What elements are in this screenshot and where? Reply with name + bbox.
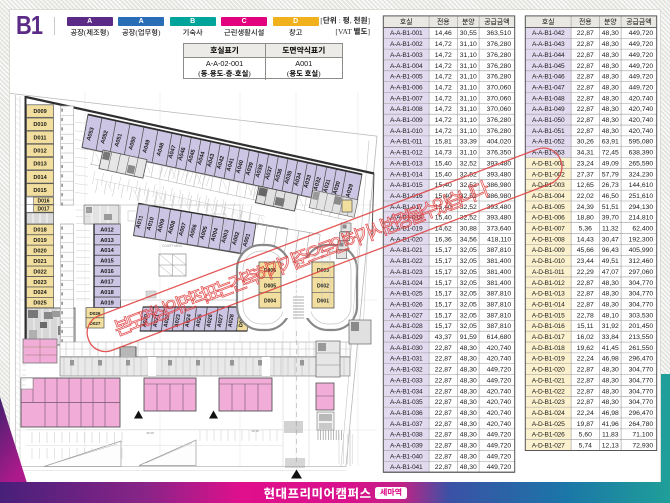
svg-text:12,65: 12,65 <box>577 182 594 189</box>
svg-text:420,740: 420,740 <box>487 421 512 428</box>
svg-text:304,770: 304,770 <box>629 399 654 406</box>
svg-text:34,56: 34,56 <box>460 236 477 243</box>
svg-text:48,30: 48,30 <box>602 280 619 287</box>
svg-text:22,87: 22,87 <box>577 367 594 374</box>
svg-text:22,87: 22,87 <box>577 41 594 48</box>
svg-text:19,62: 19,62 <box>577 345 594 352</box>
svg-text:A014: A014 <box>100 248 114 254</box>
svg-text:49,51: 49,51 <box>602 258 619 265</box>
svg-text:A-D-B1-020: A-D-B1-020 <box>532 367 565 374</box>
svg-text:A016: A016 <box>100 269 114 275</box>
svg-text:31,10: 31,10 <box>460 150 477 157</box>
svg-text:A-A-B1-004: A-A-B1-004 <box>390 63 423 70</box>
svg-text:15,11: 15,11 <box>577 323 594 330</box>
svg-text:11,83: 11,83 <box>602 432 619 439</box>
svg-text:387,810: 387,810 <box>487 247 512 254</box>
svg-text:48,30: 48,30 <box>460 356 477 363</box>
svg-text:192,300: 192,300 <box>629 236 654 243</box>
svg-text:14,43: 14,43 <box>577 236 594 243</box>
svg-text:A-D-B1-014: A-D-B1-014 <box>532 301 565 308</box>
svg-text:A-A-B1-037: A-A-B1-037 <box>390 421 423 428</box>
svg-text:34,31: 34,31 <box>577 150 594 157</box>
svg-text:A-D-B1-022: A-D-B1-022 <box>532 388 565 395</box>
svg-text:48,30: 48,30 <box>460 367 477 374</box>
svg-text:38 38: 38 38 <box>146 431 154 435</box>
svg-text:22,87: 22,87 <box>435 367 452 374</box>
svg-text:공급금액: 공급금액 <box>484 18 509 26</box>
svg-text:A-D-B1-019: A-D-B1-019 <box>532 356 565 363</box>
svg-text:46,98: 46,98 <box>602 410 619 417</box>
svg-text:A017: A017 <box>100 280 114 286</box>
svg-text:19,87: 19,87 <box>577 421 594 428</box>
svg-text:15,17: 15,17 <box>435 269 452 276</box>
svg-text:48,30: 48,30 <box>602 106 619 113</box>
svg-text:A-D-B1-010: A-D-B1-010 <box>532 258 565 265</box>
svg-text:A-A-B1-021: A-A-B1-021 <box>390 247 423 254</box>
svg-text:A-A-B1-023: A-A-B1-023 <box>390 269 423 276</box>
svg-text:30,55: 30,55 <box>460 30 477 37</box>
svg-text:387,810: 387,810 <box>487 312 512 319</box>
svg-text:15,81: 15,81 <box>435 139 452 146</box>
svg-text:31,10: 31,10 <box>460 84 477 91</box>
svg-text:48,30: 48,30 <box>602 117 619 124</box>
svg-text:31,92: 31,92 <box>602 323 619 330</box>
svg-text:72,45: 72,45 <box>602 150 619 157</box>
svg-text:22,87: 22,87 <box>435 410 452 417</box>
svg-text:31,10: 31,10 <box>460 63 477 70</box>
svg-text:31,10: 31,10 <box>460 74 477 81</box>
svg-text:33,84: 33,84 <box>602 334 619 341</box>
svg-text:48,30: 48,30 <box>460 443 477 450</box>
svg-text:A-D-B1-008: A-D-B1-008 <box>532 236 565 243</box>
svg-text:404,020: 404,020 <box>487 139 512 146</box>
svg-text:23,44: 23,44 <box>577 258 594 265</box>
svg-text:D015: D015 <box>33 188 46 194</box>
svg-text:32,05: 32,05 <box>460 247 477 254</box>
svg-text:96,43: 96,43 <box>602 247 619 254</box>
svg-text:분양: 분양 <box>604 18 617 26</box>
svg-text:A-D-B1-013: A-D-B1-013 <box>532 291 565 298</box>
svg-text:A-A-B1-052: A-A-B1-052 <box>532 139 565 146</box>
svg-text:A-A-B1-007: A-A-B1-007 <box>390 95 423 102</box>
svg-text:16,36: 16,36 <box>435 236 452 243</box>
svg-text:A-A-B1-010: A-A-B1-010 <box>390 128 423 135</box>
svg-text:33,39: 33,39 <box>460 139 477 146</box>
svg-text:48,30: 48,30 <box>602 388 619 395</box>
svg-text:48,30: 48,30 <box>602 63 619 70</box>
svg-text:14,72: 14,72 <box>435 117 452 124</box>
svg-text:31,10: 31,10 <box>460 128 477 135</box>
svg-text:24,39: 24,39 <box>577 204 594 211</box>
svg-text:373,640: 373,640 <box>487 226 512 233</box>
svg-text:A-D-B1-007: A-D-B1-007 <box>532 226 565 233</box>
svg-text:A-A-B1-030: A-A-B1-030 <box>390 345 423 352</box>
svg-text:449,720: 449,720 <box>629 74 654 81</box>
svg-text:449,720: 449,720 <box>487 443 512 450</box>
svg-text:420,740: 420,740 <box>487 345 512 352</box>
svg-text:분양: 분양 <box>462 18 475 26</box>
svg-text:420,740: 420,740 <box>629 128 654 135</box>
svg-text:14,72: 14,72 <box>435 95 452 102</box>
svg-text:A-D-B1-005: A-D-B1-005 <box>532 204 565 211</box>
svg-text:449,720: 449,720 <box>629 84 654 91</box>
svg-text:22,87: 22,87 <box>577 30 594 37</box>
svg-text:363,510: 363,510 <box>487 30 512 37</box>
svg-text:22,29: 22,29 <box>577 269 594 276</box>
svg-text:31,10: 31,10 <box>460 117 477 124</box>
svg-text:386,980: 386,980 <box>487 193 512 200</box>
svg-text:638,390: 638,390 <box>629 150 654 157</box>
svg-text:48,30: 48,30 <box>602 399 619 406</box>
svg-text:614,680: 614,680 <box>487 334 512 341</box>
svg-text:14,73: 14,73 <box>435 150 452 157</box>
svg-text:15,17: 15,17 <box>435 280 452 287</box>
svg-text:15,17: 15,17 <box>435 258 452 265</box>
svg-text:376,280: 376,280 <box>487 117 512 124</box>
svg-text:31,10: 31,10 <box>460 95 477 102</box>
svg-text:A-D-B1-017: A-D-B1-017 <box>532 334 565 341</box>
svg-text:449,720: 449,720 <box>629 52 654 59</box>
svg-text:312,460: 312,460 <box>629 258 654 265</box>
svg-text:D010: D010 <box>33 122 46 128</box>
svg-text:A-A-B1-015: A-A-B1-015 <box>390 182 423 189</box>
svg-text:A012: A012 <box>100 227 114 233</box>
svg-text:22,87: 22,87 <box>435 432 452 439</box>
svg-text:265,590: 265,590 <box>629 160 654 167</box>
svg-text:22,87: 22,87 <box>435 421 452 428</box>
svg-text:48,30: 48,30 <box>602 84 619 91</box>
svg-text:296,470: 296,470 <box>629 356 654 363</box>
svg-text:48,30: 48,30 <box>460 432 477 439</box>
svg-text:22,87: 22,87 <box>577 399 594 406</box>
svg-text:201,450: 201,450 <box>629 323 654 330</box>
svg-text:27,37: 27,37 <box>577 171 594 178</box>
svg-text:A-A-B1-014: A-A-B1-014 <box>390 171 423 178</box>
svg-text:49,09: 49,09 <box>602 160 619 167</box>
svg-text:72,930: 72,930 <box>632 443 653 450</box>
svg-text:호실: 호실 <box>400 17 413 26</box>
svg-text:공급금액: 공급금액 <box>626 18 651 26</box>
svg-text:D023: D023 <box>33 280 46 286</box>
svg-text:418,110: 418,110 <box>487 236 511 243</box>
svg-text:381,400: 381,400 <box>487 269 512 276</box>
svg-text:57,79: 57,79 <box>602 171 619 178</box>
svg-text:A-A-B1-028: A-A-B1-028 <box>390 323 423 330</box>
svg-text:22,87: 22,87 <box>577 128 594 135</box>
svg-text:26,73: 26,73 <box>602 182 619 189</box>
svg-text:15,17: 15,17 <box>435 291 452 298</box>
svg-text:48,30: 48,30 <box>602 52 619 59</box>
svg-text:51,51: 51,51 <box>602 204 619 211</box>
svg-text:376,280: 376,280 <box>487 41 512 48</box>
svg-text:22,24: 22,24 <box>577 410 594 417</box>
svg-text:18,80: 18,80 <box>577 215 594 222</box>
svg-text:A-A-B1-001: A-A-B1-001 <box>390 30 423 37</box>
svg-text:D002: D002 <box>317 283 329 289</box>
svg-text:420,740: 420,740 <box>629 95 654 102</box>
svg-text:48,30: 48,30 <box>602 74 619 81</box>
svg-text:304,770: 304,770 <box>629 367 654 374</box>
svg-text:A-A-B1-040: A-A-B1-040 <box>390 453 423 460</box>
svg-text:전용: 전용 <box>437 17 450 26</box>
svg-text:370,060: 370,060 <box>487 106 512 113</box>
svg-text:D018: D018 <box>33 228 46 234</box>
svg-text:A-A-B1-029: A-A-B1-029 <box>390 334 423 341</box>
svg-text:A-A-B1-005: A-A-B1-005 <box>390 74 423 81</box>
svg-text:376,350: 376,350 <box>487 150 512 157</box>
svg-text:48,30: 48,30 <box>460 464 477 471</box>
svg-text:324,230: 324,230 <box>629 171 654 178</box>
svg-text:214,810: 214,810 <box>629 215 654 222</box>
svg-text:22,87: 22,87 <box>577 388 594 395</box>
svg-text:A-A-B1-038: A-A-B1-038 <box>390 432 423 439</box>
svg-text:41,96: 41,96 <box>602 421 619 428</box>
svg-text:A-A-B1-039: A-A-B1-039 <box>390 443 423 450</box>
svg-text:304,770: 304,770 <box>629 377 654 384</box>
svg-text:47,07: 47,07 <box>602 269 619 276</box>
svg-text:A-A-B1-022: A-A-B1-022 <box>390 258 423 265</box>
svg-text:30,26: 30,26 <box>577 139 594 146</box>
svg-text:22,24: 22,24 <box>577 356 594 363</box>
svg-text:32,05: 32,05 <box>460 312 477 319</box>
svg-text:A-D-B1-024: A-D-B1-024 <box>532 410 565 417</box>
svg-text:420,740: 420,740 <box>629 117 654 124</box>
svg-text:22,87: 22,87 <box>577 63 594 70</box>
svg-text:381,400: 381,400 <box>487 280 512 287</box>
svg-text:A-D-B1-015: A-D-B1-015 <box>532 312 565 319</box>
svg-text:251,610: 251,610 <box>629 193 654 200</box>
svg-text:14,72: 14,72 <box>435 84 452 91</box>
svg-text:48,30: 48,30 <box>602 41 619 48</box>
svg-text:D022: D022 <box>33 269 46 275</box>
svg-text:449,720: 449,720 <box>487 432 512 439</box>
svg-text:39,70: 39,70 <box>602 215 619 222</box>
svg-text:A-A-B1-024: A-A-B1-024 <box>390 280 423 287</box>
svg-text:A-D-B1-004: A-D-B1-004 <box>532 193 565 200</box>
svg-text:22,87: 22,87 <box>435 399 452 406</box>
svg-text:14,72: 14,72 <box>435 63 452 70</box>
svg-text:A-A-B1-031: A-A-B1-031 <box>390 356 423 363</box>
svg-text:D017: D017 <box>38 206 50 212</box>
svg-text:48,30: 48,30 <box>602 128 619 135</box>
svg-text:5,36: 5,36 <box>579 226 592 233</box>
svg-text:31,10: 31,10 <box>460 41 477 48</box>
svg-text:31,10: 31,10 <box>460 52 477 59</box>
svg-text:D021: D021 <box>33 259 46 265</box>
svg-text:376,280: 376,280 <box>487 128 512 135</box>
svg-text:22,87: 22,87 <box>435 453 452 460</box>
svg-text:213,550: 213,550 <box>629 334 654 341</box>
svg-text:30,88: 30,88 <box>460 226 477 233</box>
svg-text:32,05: 32,05 <box>460 258 477 265</box>
svg-text:14,72: 14,72 <box>435 74 452 81</box>
svg-text:22,87: 22,87 <box>435 377 452 384</box>
svg-text:A-D-B1-011: A-D-B1-011 <box>532 269 565 276</box>
svg-text:COURTYARD: COURTYARD <box>162 244 183 248</box>
svg-text:D013: D013 <box>33 162 46 168</box>
svg-text:A-D-B1-027: A-D-B1-027 <box>532 443 565 450</box>
svg-text:A-A-B1-011: A-A-B1-011 <box>390 139 422 146</box>
svg-text:A-D-B1-023: A-D-B1-023 <box>532 399 565 406</box>
svg-text:15,17: 15,17 <box>435 247 452 254</box>
svg-text:5,74: 5,74 <box>579 443 592 450</box>
svg-text:449,720: 449,720 <box>487 377 512 384</box>
svg-text:11,32: 11,32 <box>602 226 619 233</box>
svg-text:46,98: 46,98 <box>602 356 619 363</box>
svg-text:14,46: 14,46 <box>435 30 452 37</box>
svg-text:A-A-B1-012: A-A-B1-012 <box>390 150 423 157</box>
svg-text:449,720: 449,720 <box>629 41 654 48</box>
svg-text:32,52: 32,52 <box>460 160 477 167</box>
svg-text:14,72: 14,72 <box>435 52 452 59</box>
svg-text:393,480: 393,480 <box>487 215 512 222</box>
svg-text:A019: A019 <box>100 300 114 306</box>
svg-text:48,30: 48,30 <box>602 377 619 384</box>
svg-text:261,550: 261,550 <box>629 345 654 352</box>
svg-text:420,740: 420,740 <box>487 356 512 363</box>
svg-text:16,02: 16,02 <box>577 334 594 341</box>
svg-text:48,30: 48,30 <box>602 291 619 298</box>
svg-text:48,30: 48,30 <box>460 421 477 428</box>
svg-text:A-A-B1-009: A-A-B1-009 <box>390 117 423 124</box>
svg-text:A-A-B1-046: A-A-B1-046 <box>532 74 565 81</box>
svg-text:297,060: 297,060 <box>629 269 654 276</box>
svg-text:D016: D016 <box>38 199 50 205</box>
svg-text:22,87: 22,87 <box>577 84 594 91</box>
svg-text:D014: D014 <box>33 175 47 181</box>
svg-text:A-A-B1-053: A-A-B1-053 <box>532 150 565 157</box>
svg-text:22,87: 22,87 <box>577 74 594 81</box>
svg-text:A-D-B1-018: A-D-B1-018 <box>532 345 565 352</box>
svg-text:A-A-B1-047: A-A-B1-047 <box>532 84 565 91</box>
svg-text:A-A-B1-041: A-A-B1-041 <box>390 464 423 471</box>
svg-text:304,770: 304,770 <box>629 388 654 395</box>
svg-text:D025: D025 <box>33 301 46 307</box>
svg-text:A015: A015 <box>100 259 114 265</box>
svg-text:A-A-B1-002: A-A-B1-002 <box>390 41 423 48</box>
svg-text:A-A-B1-042: A-A-B1-042 <box>532 30 565 37</box>
svg-text:A-A-B1-013: A-A-B1-013 <box>390 160 423 167</box>
svg-text:91,59: 91,59 <box>460 334 477 341</box>
svg-text:420,740: 420,740 <box>629 106 654 113</box>
svg-text:304,770: 304,770 <box>629 301 654 308</box>
svg-text:45,66: 45,66 <box>577 247 594 254</box>
svg-text:22,02: 22,02 <box>577 193 594 200</box>
svg-text:48,30: 48,30 <box>460 345 477 352</box>
svg-text:A-A-B1-044: A-A-B1-044 <box>532 52 565 59</box>
svg-text:D011: D011 <box>33 135 46 141</box>
svg-text:304,770: 304,770 <box>629 291 654 298</box>
svg-text:22,87: 22,87 <box>435 464 452 471</box>
svg-text:A-A-B1-008: A-A-B1-008 <box>390 106 423 113</box>
svg-text:A-D-B1-006: A-D-B1-006 <box>532 215 565 222</box>
svg-text:A013: A013 <box>100 238 114 244</box>
svg-text:71,100: 71,100 <box>632 432 653 439</box>
svg-text:A-A-B1-043: A-A-B1-043 <box>532 41 565 48</box>
svg-text:15,17: 15,17 <box>435 301 452 308</box>
svg-text:370,060: 370,060 <box>487 84 512 91</box>
svg-text:63,91: 63,91 <box>602 139 619 146</box>
svg-text:A-A-B1-051: A-A-B1-051 <box>532 128 565 135</box>
svg-text:A-D-B1-025: A-D-B1-025 <box>532 421 565 428</box>
svg-text:22,87: 22,87 <box>577 117 594 124</box>
svg-text:22,87: 22,87 <box>577 280 594 287</box>
svg-text:A-A-B1-045: A-A-B1-045 <box>532 63 565 70</box>
svg-text:14,72: 14,72 <box>435 41 452 48</box>
svg-text:294,130: 294,130 <box>629 204 654 211</box>
svg-text:A-A-B1-025: A-A-B1-025 <box>390 291 423 298</box>
svg-text:15,17: 15,17 <box>435 312 452 319</box>
svg-text:15,40: 15,40 <box>435 171 452 178</box>
svg-text:449,720: 449,720 <box>487 453 512 460</box>
svg-text:449,720: 449,720 <box>629 30 654 37</box>
svg-text:449,720: 449,720 <box>629 63 654 70</box>
svg-text:370,060: 370,060 <box>487 95 512 102</box>
svg-text:22,87: 22,87 <box>435 356 452 363</box>
svg-text:D024: D024 <box>33 290 47 296</box>
svg-text:A-D-B1-012: A-D-B1-012 <box>532 280 565 287</box>
svg-text:A-D-B1-026: A-D-B1-026 <box>532 432 565 439</box>
svg-text:전용: 전용 <box>579 17 592 26</box>
svg-text:48,30: 48,30 <box>460 453 477 460</box>
svg-text:595,080: 595,080 <box>629 139 654 146</box>
svg-text:A-A-B1-033: A-A-B1-033 <box>390 377 423 384</box>
svg-text:48,30: 48,30 <box>460 377 477 384</box>
svg-text:A-A-B1-026: A-A-B1-026 <box>390 301 423 308</box>
svg-text:48,30: 48,30 <box>602 301 619 308</box>
svg-text:303,530: 303,530 <box>629 312 654 319</box>
svg-text:30,47: 30,47 <box>602 236 619 243</box>
svg-text:376,280: 376,280 <box>487 63 512 70</box>
svg-text:32,05: 32,05 <box>460 323 477 330</box>
svg-text:41,45: 41,45 <box>602 345 619 352</box>
svg-text:62,400: 62,400 <box>632 226 653 233</box>
svg-text:420,740: 420,740 <box>487 410 512 417</box>
svg-text:23,24: 23,24 <box>577 160 594 167</box>
svg-text:32,05: 32,05 <box>460 301 477 308</box>
svg-text:15,17: 15,17 <box>435 323 452 330</box>
svg-text:420,740: 420,740 <box>487 399 512 406</box>
svg-text:A-A-B1-003: A-A-B1-003 <box>390 52 423 59</box>
svg-text:22,87: 22,87 <box>577 52 594 59</box>
svg-text:46,50: 46,50 <box>602 193 619 200</box>
svg-text:32,05: 32,05 <box>460 269 477 276</box>
svg-text:A-D-B1-009: A-D-B1-009 <box>532 247 565 254</box>
svg-text:48,30: 48,30 <box>460 399 477 406</box>
svg-text:15,40: 15,40 <box>435 160 452 167</box>
svg-text:D004: D004 <box>264 299 276 305</box>
svg-text:264,780: 264,780 <box>629 421 654 428</box>
svg-text:A-D-B1-021: A-D-B1-021 <box>532 377 565 384</box>
svg-text:A-D-B1-003: A-D-B1-003 <box>532 182 565 189</box>
svg-text:32,05: 32,05 <box>460 291 477 298</box>
svg-text:48,30: 48,30 <box>602 367 619 374</box>
svg-text:D020: D020 <box>33 248 46 254</box>
svg-text:449,720: 449,720 <box>487 464 512 471</box>
svg-text:22,87: 22,87 <box>577 106 594 113</box>
svg-text:A-A-B1-036: A-A-B1-036 <box>390 410 423 417</box>
svg-text:304,770: 304,770 <box>629 280 654 287</box>
svg-text:32,05: 32,05 <box>460 280 477 287</box>
svg-text:296,470: 296,470 <box>629 410 654 417</box>
svg-text:14,72: 14,72 <box>435 128 452 135</box>
svg-text:A-A-B1-027: A-A-B1-027 <box>390 312 423 319</box>
svg-text:D012: D012 <box>33 148 46 154</box>
svg-text:393,480: 393,480 <box>487 171 512 178</box>
svg-text:48,30: 48,30 <box>460 388 477 395</box>
svg-text:144,610: 144,610 <box>629 182 654 189</box>
svg-text:· · · · · · · · ·: · · · · · · · · · <box>39 366 55 370</box>
